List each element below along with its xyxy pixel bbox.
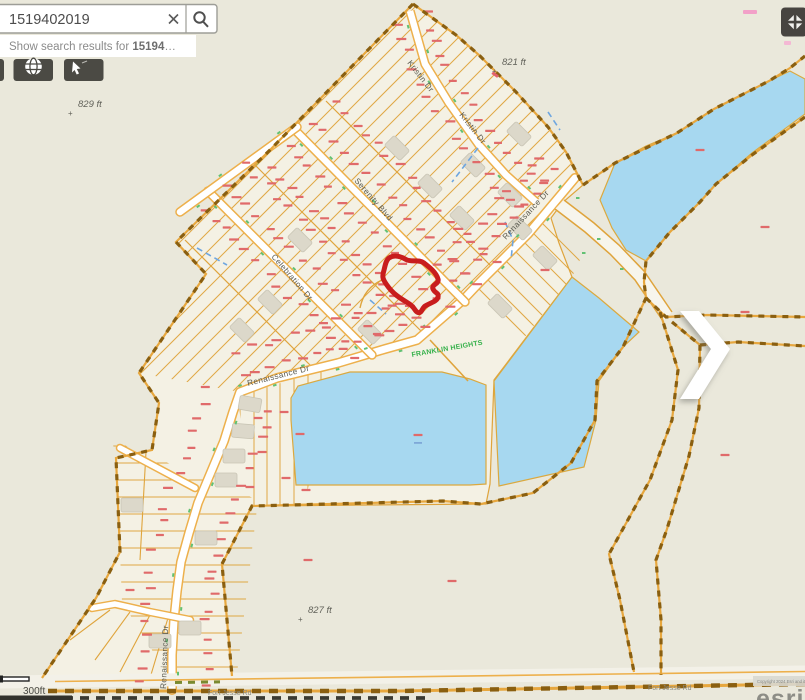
svg-text:300ft: 300ft bbox=[23, 686, 45, 697]
svg-text:827 ft: 827 ft bbox=[308, 605, 332, 616]
svg-text:829 ft: 829 ft bbox=[78, 99, 102, 110]
svg-text:esri: esri bbox=[756, 685, 804, 700]
svg-text:+: + bbox=[68, 109, 73, 118]
svg-text:821 ft: 821 ft bbox=[502, 57, 526, 68]
svg-text:Show search results for 15194…: Show search results for 15194… bbox=[9, 41, 176, 53]
svg-text:1519402019: 1519402019 bbox=[9, 12, 90, 28]
svg-text:Copyright 2024 Esri and its li: Copyright 2024 Esri and its licensors bbox=[757, 679, 805, 684]
svg-text:Fort Jesse Rd: Fort Jesse Rd bbox=[208, 690, 252, 697]
svg-text:+: + bbox=[298, 615, 303, 624]
svg-text:Fort Jesse Rd: Fort Jesse Rd bbox=[648, 685, 692, 692]
